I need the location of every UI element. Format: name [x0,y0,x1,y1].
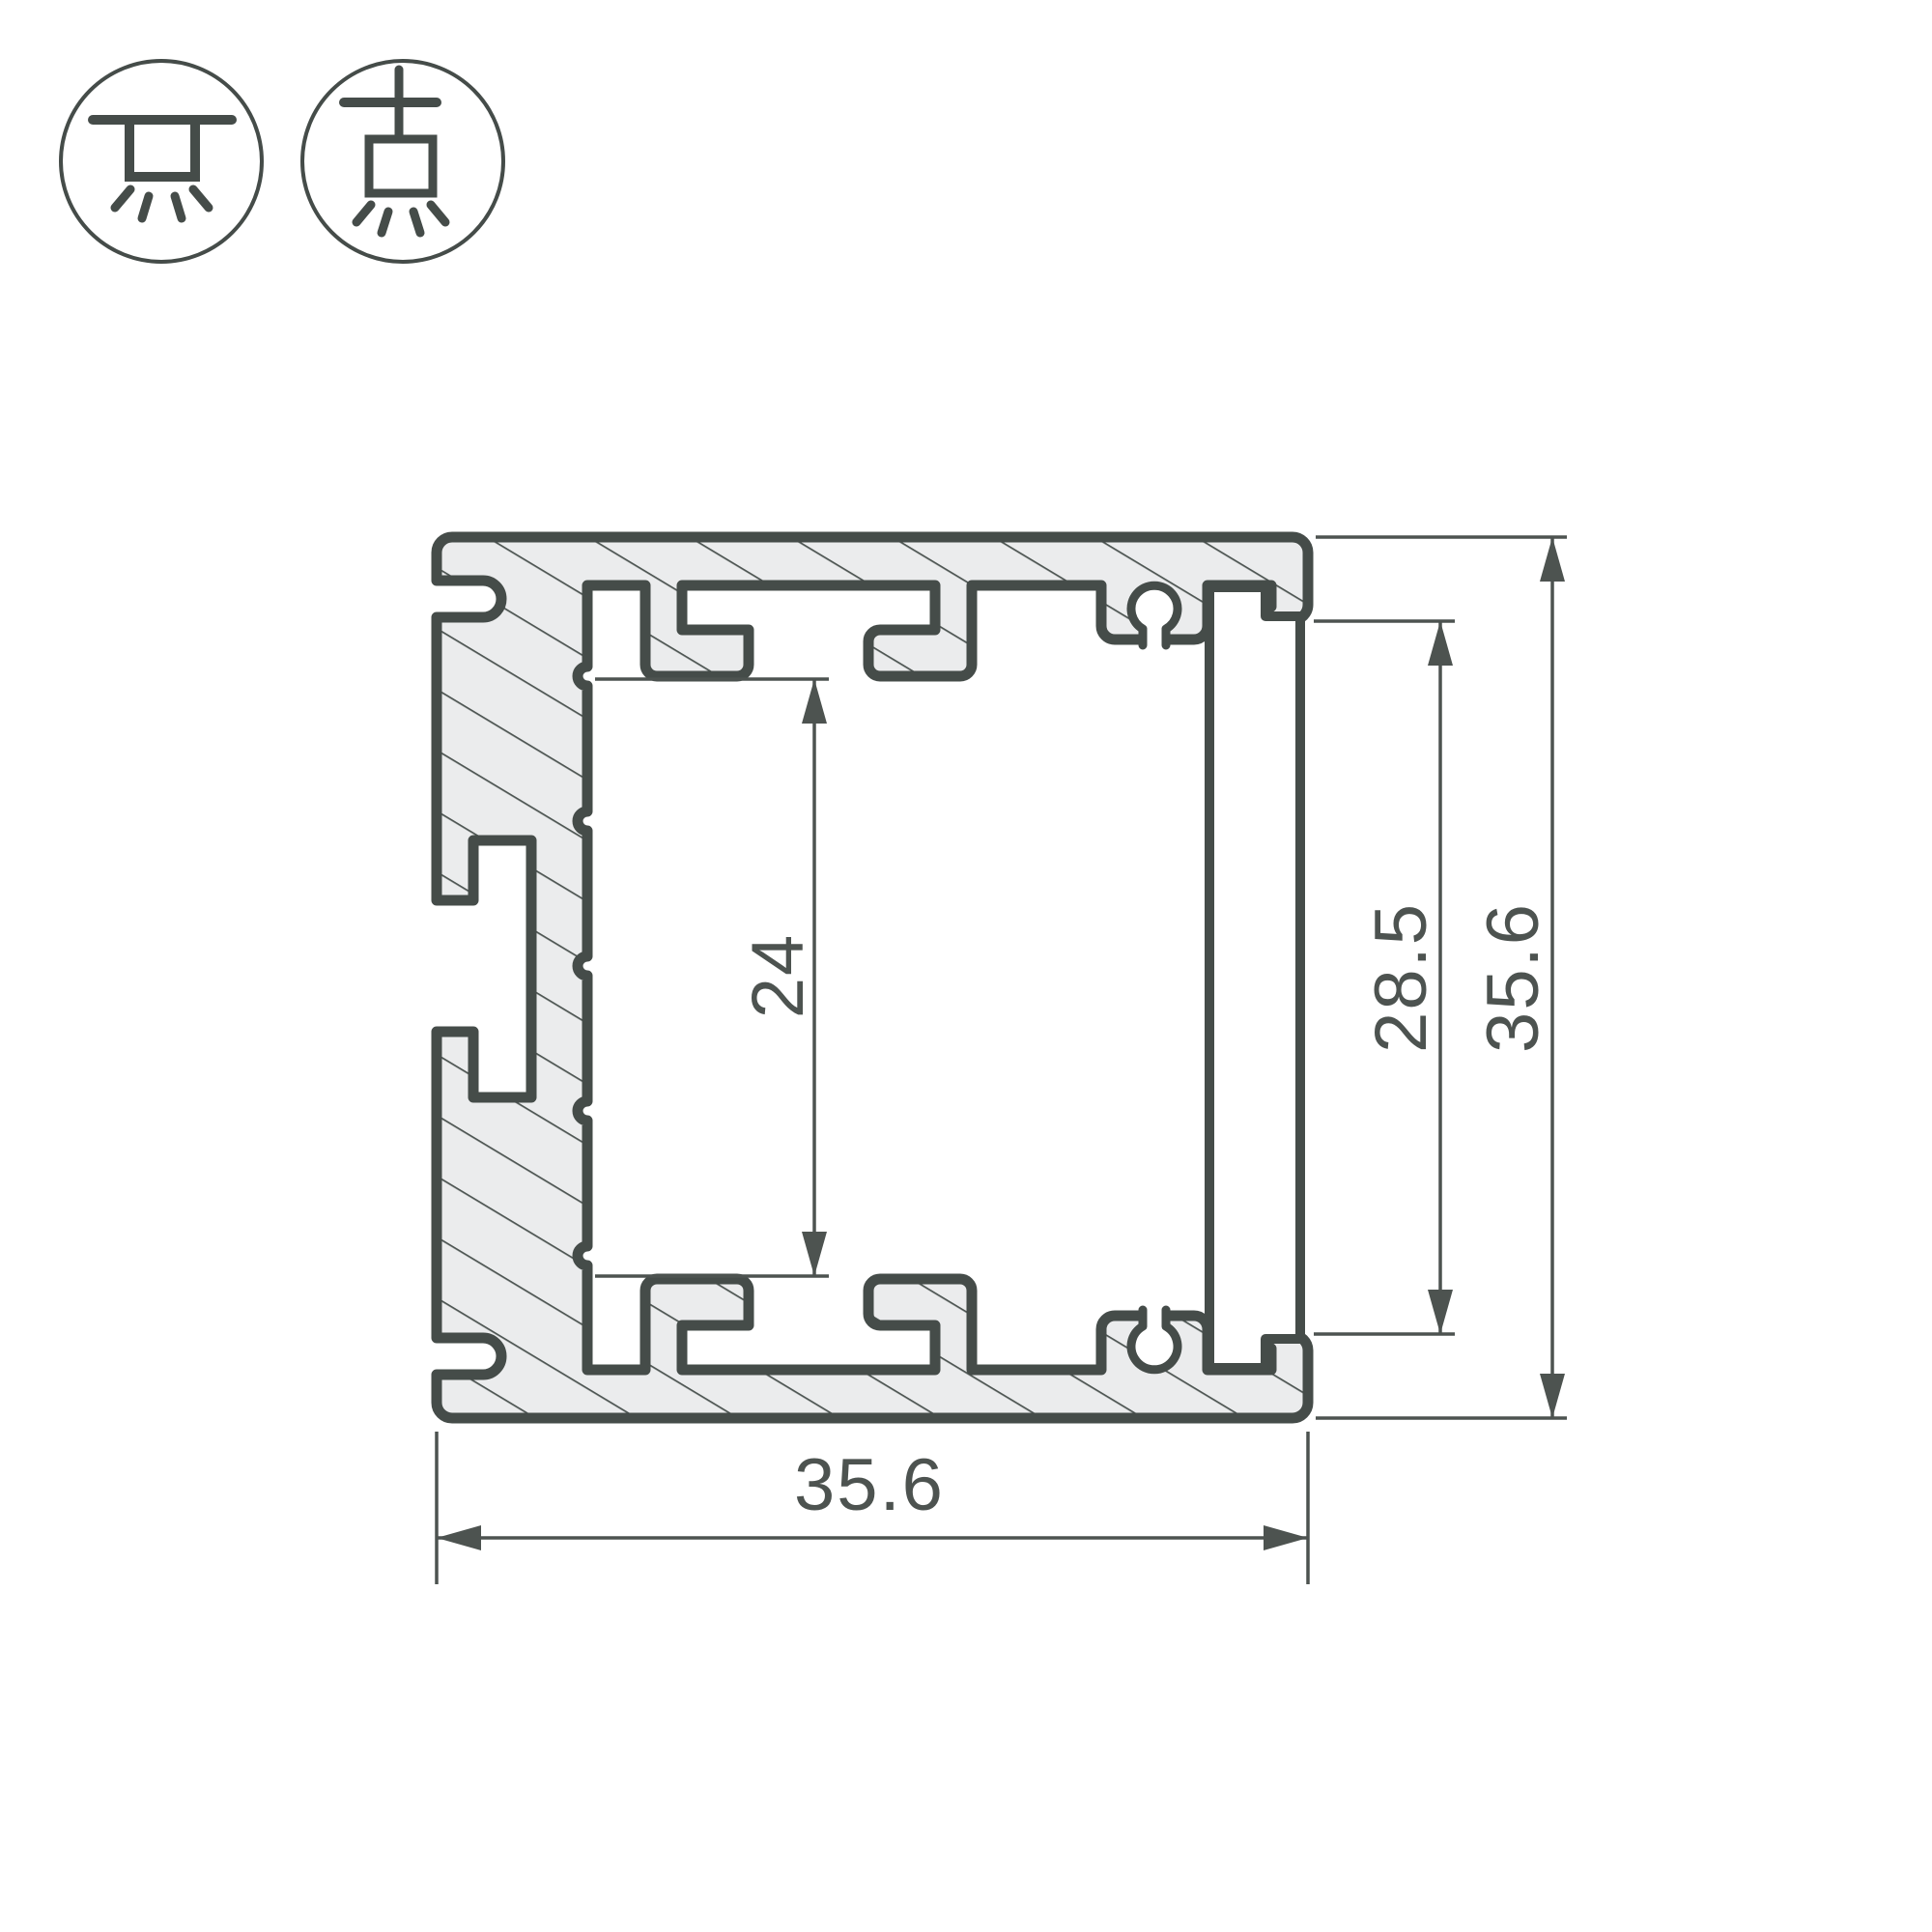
arrowhead-left-icon [437,1525,481,1550]
technical-drawing-page: 24 28.5 35.6 35.6 [0,0,1932,1932]
label-opening-height: 28.5 [1360,902,1442,1053]
label-overall-height: 35.6 [1472,902,1554,1053]
diffuser-plate [1209,587,1300,1368]
profile-cross-section [437,537,1308,1418]
dimension-labels: 24 28.5 35.6 35.6 [737,902,1554,1526]
light-rays-icon [115,189,209,218]
arrowhead-down-icon [1540,1374,1565,1418]
arrowhead-down-icon [1428,1290,1453,1334]
arrowhead-right-icon [1264,1525,1308,1550]
arrowhead-up-icon [1428,621,1453,666]
light-rays-icon [356,205,445,233]
profile-body-hatched [437,537,1308,1418]
label-overall-width: 35.6 [794,1444,945,1526]
arrowhead-up-icon [802,679,827,724]
drawing-canvas: 24 28.5 35.6 35.6 [0,0,1932,1932]
luminaire-box [369,139,433,193]
arrowhead-down-icon [802,1232,827,1276]
label-cavity-height: 24 [737,933,819,1019]
dimension-annotations [437,537,1567,1584]
luminaire-box [129,120,195,177]
pendant-mount-luminaire-icon [302,61,503,262]
arrowhead-up-icon [1540,537,1565,582]
surface-mount-luminaire-icon [61,61,262,262]
